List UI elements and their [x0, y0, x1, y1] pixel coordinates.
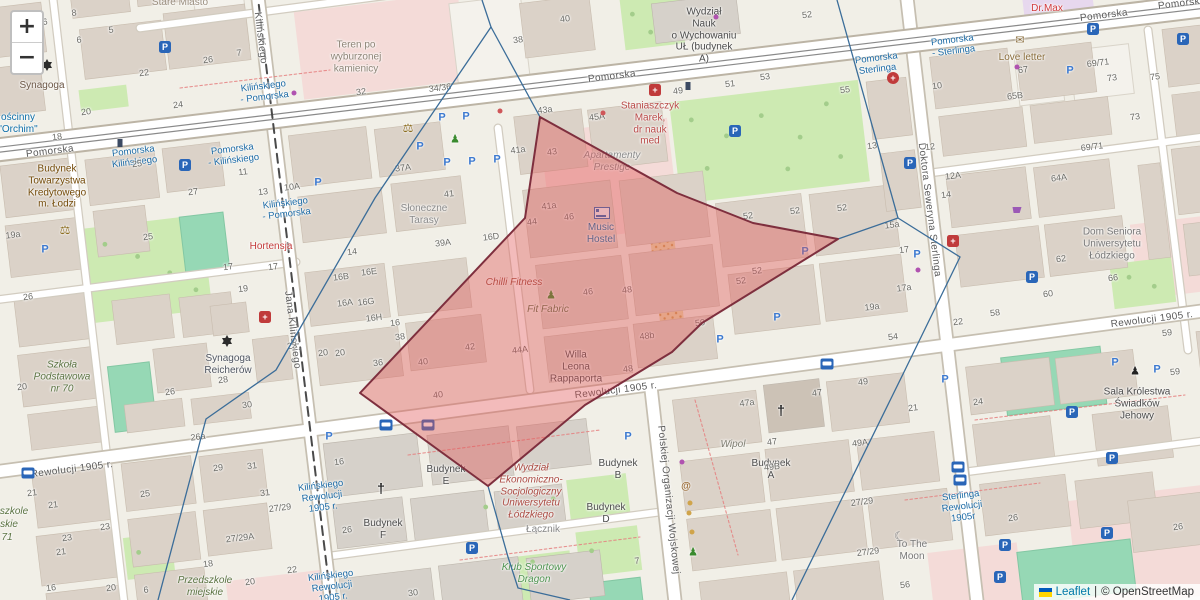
parking-icon: P: [1111, 358, 1118, 369]
parking-icon: P: [801, 247, 808, 258]
poi-label: SynagogaReicherów: [204, 353, 251, 377]
church-cross-icon: †: [777, 403, 785, 417]
house-number: 47: [811, 387, 822, 399]
house-number: 16G: [357, 296, 375, 309]
house-number: 59: [1169, 366, 1180, 378]
runner-icon: ♟: [546, 291, 556, 302]
osm-link[interactable]: © OpenStreetMap: [1101, 586, 1194, 598]
house-number: 31: [259, 487, 270, 499]
poi-label: WydziałEkonomiczno-SocjologicznyUniwersy…: [499, 463, 562, 522]
parking-icon: P: [468, 157, 475, 168]
parking-icon: P: [466, 542, 478, 554]
house-number: 16: [45, 582, 56, 594]
house-number: 59: [1161, 327, 1172, 339]
house-number: 17: [267, 261, 278, 273]
poi-label: SłoneczneTarasy: [401, 203, 448, 227]
poi-label: 71: [1, 532, 12, 544]
house-number: 21: [26, 487, 37, 499]
parking-icon: P: [1106, 452, 1118, 464]
house-number: 44: [526, 216, 537, 228]
house-number: 47a: [739, 397, 755, 409]
house-number: 52: [735, 275, 746, 287]
parking-icon: P: [179, 159, 191, 171]
poi-label: Wipol: [721, 439, 746, 451]
internet-cafe-icon: @: [681, 482, 691, 492]
house-number: 48: [622, 363, 633, 375]
house-number: 26: [202, 54, 213, 66]
street-label: Pomorska: [25, 143, 74, 161]
poi-label: WillaLeonaRappaporta: [550, 349, 602, 384]
house-number: 5: [108, 24, 114, 35]
house-number: 43a: [537, 104, 553, 116]
house-number: 20: [16, 381, 27, 393]
parking-icon: P: [325, 432, 332, 443]
house-number: 52: [789, 205, 800, 217]
house-number: 26: [22, 291, 33, 303]
house-number: 16H: [365, 312, 383, 324]
house-number: 23: [61, 532, 72, 544]
house-number: 69/71: [1086, 56, 1110, 69]
moon-icon: ☾: [894, 532, 904, 543]
parking-icon: P: [941, 375, 948, 386]
poi-label: Chilli Fitness: [486, 277, 543, 289]
house-number: 41a: [510, 144, 526, 156]
poi-label: BudynekD: [587, 502, 626, 526]
house-number: 49: [672, 85, 683, 97]
house-number: 12: [924, 141, 935, 153]
house-number: 7: [634, 555, 640, 566]
transit-stop-label: Pomorska- Kilińskiego: [206, 141, 260, 169]
house-number: 16B: [332, 271, 349, 283]
poi-dot-icon: [1015, 65, 1020, 70]
poi-dot-icon: [680, 460, 685, 465]
transit-stop-label: SterlingaRewolucji1905r: [940, 488, 984, 526]
house-number: 50: [694, 317, 705, 329]
street-label: Pomorska: [587, 68, 636, 86]
attribution-bar: Leaflet | © OpenStreetMap: [1034, 584, 1200, 600]
transit-stop-label: Kilińskiego- Pomorska: [261, 195, 312, 223]
poi-label: Łącznik: [526, 524, 560, 536]
house-number: 56: [899, 579, 910, 591]
parking-icon: P: [438, 113, 445, 124]
tram-stop-icon: [118, 139, 123, 147]
house-number: 27/29: [856, 545, 880, 558]
house-number: 10: [931, 80, 942, 92]
medical-icon: +: [259, 311, 271, 323]
house-number: 49A: [851, 437, 868, 449]
house-number: 19a: [864, 301, 880, 313]
house-number: 26a: [190, 431, 206, 443]
poi-label: BudynekTowarzystwaKredytowegom. Łodzi: [28, 163, 86, 210]
parking-icon: P: [493, 155, 500, 166]
poi-label: Dr.Max: [1031, 3, 1063, 15]
house-number: 49B: [763, 461, 780, 473]
house-number: 26: [1007, 512, 1018, 524]
house-number: 25: [139, 488, 150, 500]
bus-stop-icon: [380, 420, 393, 431]
house-number: 16: [389, 317, 400, 329]
parking-icon: P: [1066, 406, 1078, 418]
bus-stop-icon: [821, 359, 834, 370]
parking-icon: P: [729, 125, 741, 137]
house-number: 26: [1172, 521, 1183, 533]
house-number: 25: [142, 231, 153, 243]
tram-stop-icon: [686, 82, 691, 90]
house-number: 40: [432, 389, 443, 401]
house-number: 19a: [5, 229, 21, 241]
poi-label: Synagoga: [19, 80, 64, 92]
poi-label: StaniaszczykMarek,dr naukmed: [621, 100, 679, 147]
street-label: Polskiej Organizacji Wojskowej: [654, 425, 681, 575]
poi-label: szkole: [0, 506, 28, 518]
runner-icon: ♟: [450, 135, 460, 146]
house-number: 20: [317, 347, 328, 359]
bus-stop-icon: [954, 475, 967, 486]
parking-icon: P: [1087, 23, 1099, 35]
house-number: 65B: [1006, 90, 1023, 102]
house-number: 30: [407, 587, 418, 599]
shopping-cart-icon: [1013, 207, 1022, 213]
transit-stop-label: KilińskiegoRewolucji1905 r.: [307, 568, 356, 600]
house-number: 6: [76, 34, 82, 45]
star-of-david-icon: [220, 335, 234, 349]
house-number: 27/29: [850, 495, 874, 508]
parking-icon: P: [999, 539, 1011, 551]
poi-label: Klub SportowyDragon: [502, 562, 566, 586]
house-number: 21: [55, 546, 66, 558]
house-number: 48b: [639, 330, 655, 342]
parking-icon: P: [1066, 66, 1073, 77]
parking-icon: P: [1101, 527, 1113, 539]
house-number: 25: [131, 158, 142, 170]
parking-icon: P: [904, 157, 916, 169]
transit-stop-label: Pomorska- Sterlinga: [930, 32, 976, 59]
house-number: 11: [238, 166, 249, 178]
house-number: 54: [887, 331, 898, 343]
scales-justice-icon: ⚖: [403, 122, 414, 134]
poi-label: ościnny"Orchim": [0, 112, 38, 136]
house-number: 15a: [884, 219, 900, 231]
poi-label: Dom SenioraUniwersytetuŁódzkiego: [1083, 226, 1141, 261]
house-number: 12A: [944, 170, 961, 182]
hospital-icon: +: [887, 72, 899, 84]
hostel-bed-icon: [594, 207, 610, 219]
poi-label: Love letter: [999, 52, 1046, 64]
transit-stop-label: KilińskiegoRewolucji1905 r.: [297, 478, 346, 517]
house-number: 22: [952, 316, 963, 328]
house-number: 69/71: [1080, 140, 1104, 153]
house-number: 62: [1055, 253, 1066, 265]
house-number: 38: [512, 34, 523, 46]
poi-label: MusicHostel: [587, 222, 615, 246]
poi-label: Teren powyburzonejkamienicy: [331, 39, 382, 74]
house-number: 41: [443, 188, 454, 200]
house-number: 13: [257, 186, 268, 198]
house-number: 64A: [1050, 172, 1067, 184]
house-number: 19: [237, 283, 248, 295]
house-number: 49: [857, 376, 868, 388]
house-number: 52: [742, 210, 753, 222]
house-number: 20: [244, 576, 255, 588]
parking-icon: P: [1026, 271, 1038, 283]
poi-dot-icon: [498, 109, 503, 114]
house-number: 75: [1149, 71, 1160, 83]
street-label: Rewolucji 1905 r.: [30, 459, 114, 481]
house-number: 16E: [360, 266, 377, 278]
house-number: 16: [333, 456, 344, 468]
house-number: 17a: [896, 282, 912, 294]
street-label: Pomorska: [1157, 0, 1200, 13]
parking-icon: P: [913, 250, 920, 261]
parking-icon: P: [416, 142, 423, 153]
poi-dot-icon: [714, 15, 719, 20]
medical-icon: +: [649, 84, 661, 96]
house-number: 29: [212, 462, 223, 474]
ukraine-flag-icon: [1039, 588, 1052, 597]
house-number: 10A: [283, 181, 300, 193]
house-number: 30: [241, 399, 252, 411]
house-number: 42: [464, 341, 475, 353]
poi-label: Stare Miasto: [152, 0, 208, 9]
house-number: 21: [907, 402, 918, 414]
transit-stop-label: Kilińskiego- Pomorska: [239, 78, 290, 106]
house-number: 46: [563, 211, 574, 223]
house-number: 27/29A: [225, 531, 255, 545]
house-number: 24: [172, 99, 183, 111]
house-number: 66: [1107, 272, 1118, 284]
house-number: 21: [47, 499, 58, 511]
poi-label: To TheMoon: [897, 539, 927, 563]
poi-label: WydziałNauko WychowaniuUŁ (budynekA): [672, 7, 737, 66]
zoom-control: + −: [10, 10, 44, 75]
parking-icon: P: [624, 432, 631, 443]
house-number: 16D: [482, 231, 500, 243]
street-label: Rewolucji 1905 r.: [1110, 309, 1194, 331]
house-number: 37A: [394, 162, 411, 174]
house-number: 14: [346, 246, 357, 258]
poi-label: Przedszkolemiejskie: [178, 575, 232, 599]
house-number: 40: [559, 13, 570, 25]
parking-icon: P: [1177, 33, 1189, 45]
parking-icon: P: [41, 245, 48, 256]
poi-label: Sala KrólestwaŚwiadkówJehowy: [1104, 386, 1171, 421]
house-number: 27: [187, 186, 198, 198]
house-number: 47: [766, 436, 777, 448]
house-number: 23: [99, 521, 110, 533]
house-number: 20: [334, 347, 345, 359]
house-number: 32: [355, 86, 366, 98]
poi-label: BudynekE: [427, 464, 466, 488]
map-labels-layer: PomorskaPomorskaPomorskaPomorskaRewolucj…: [0, 0, 1200, 600]
house-number: 13: [866, 140, 877, 152]
house-number: 20: [105, 582, 116, 594]
house-number: 6: [143, 584, 149, 595]
house-number: 17: [898, 244, 909, 256]
house-number: 23: [286, 340, 297, 352]
house-number: 34/36: [428, 81, 452, 94]
zoom-in-button[interactable]: +: [12, 12, 42, 43]
house-number: 73: [1129, 111, 1140, 123]
house-number: 18: [202, 558, 213, 570]
house-number: 38: [394, 331, 405, 343]
parking-icon: P: [443, 158, 450, 169]
house-number: 16A: [336, 297, 353, 309]
house-number: 40: [417, 356, 428, 368]
parking-icon: P: [314, 178, 321, 189]
poi-dot-icon: [292, 91, 297, 96]
house-number: 17: [222, 261, 233, 273]
house-number: 52: [751, 265, 762, 277]
love-letter-icon: ✉: [1015, 36, 1024, 47]
house-number: 24: [972, 396, 983, 408]
house-number: 27/29: [268, 501, 292, 514]
parking-icon: P: [462, 112, 469, 123]
house-number: 28: [217, 374, 228, 386]
house-number: 48: [621, 284, 632, 296]
house-number: 51: [724, 78, 735, 90]
house-number: 22: [138, 67, 149, 79]
house-number: 26: [341, 524, 352, 536]
street-label: Kilińskiego: [251, 11, 269, 64]
house-number: 52: [836, 202, 847, 214]
house-number: 60: [1042, 288, 1053, 300]
poi-dot-icon: [687, 511, 692, 516]
parking-icon: P: [159, 41, 171, 53]
poi-label: BudynekF: [364, 518, 403, 542]
house-number: 53: [759, 71, 770, 83]
poi-label: Fit Fabric: [527, 304, 569, 316]
house-number: 58: [989, 307, 1000, 319]
house-number: 7: [236, 47, 242, 58]
house-number: 22: [286, 564, 297, 576]
house-number: 26: [164, 386, 175, 398]
runner-icon: ♟: [688, 548, 698, 559]
poi-label: ApartamentyPrestige: [584, 150, 641, 174]
house-number: 39A: [434, 237, 451, 249]
house-number: 41a: [541, 200, 557, 212]
church-cross-icon: †: [377, 481, 385, 495]
poi-dot-icon: [690, 530, 695, 535]
house-number: 20: [80, 106, 91, 118]
poi-dot-icon: [601, 111, 606, 116]
map-canvas[interactable]: PomorskaPomorskaPomorskaPomorskaRewolucj…: [0, 0, 1200, 600]
house-number: 14: [940, 189, 951, 201]
house-number: 73: [1106, 72, 1117, 84]
house-number: 8: [71, 7, 77, 18]
medical-icon: +: [947, 235, 959, 247]
zoom-out-button[interactable]: −: [12, 43, 42, 73]
house-number: 43: [546, 146, 557, 158]
house-number: 36: [372, 357, 383, 369]
poi-label: skie: [0, 519, 18, 531]
parking-icon: P: [1153, 365, 1160, 376]
parking-icon: P: [773, 313, 780, 324]
street-label: Jana Kilińskiego: [281, 290, 302, 370]
house-number: 46: [582, 286, 593, 298]
bus-stop-icon: [22, 468, 35, 479]
house-number: 52: [801, 9, 812, 21]
poi-dot-icon: [688, 501, 693, 506]
house-number: 44A: [511, 344, 528, 356]
parking-icon: P: [716, 335, 723, 346]
taxi-icon: [422, 420, 435, 431]
bus-stop-icon: [952, 462, 965, 473]
poi-dot-icon: [916, 268, 921, 273]
house-number: 55: [839, 84, 850, 96]
house-number: 18: [51, 131, 62, 143]
house-number: 31: [246, 460, 257, 472]
person-icon: ♟: [1130, 367, 1140, 378]
poi-label: Hortensja: [250, 241, 293, 253]
scales-justice-icon: ⚖: [60, 224, 71, 236]
poi-label: BudynekB: [599, 458, 638, 482]
leaflet-link[interactable]: Leaflet: [1056, 586, 1091, 598]
attribution-separator: |: [1094, 586, 1097, 598]
parking-icon: P: [994, 571, 1006, 583]
poi-label: SzkołaPodstawowanr 70: [34, 359, 91, 394]
